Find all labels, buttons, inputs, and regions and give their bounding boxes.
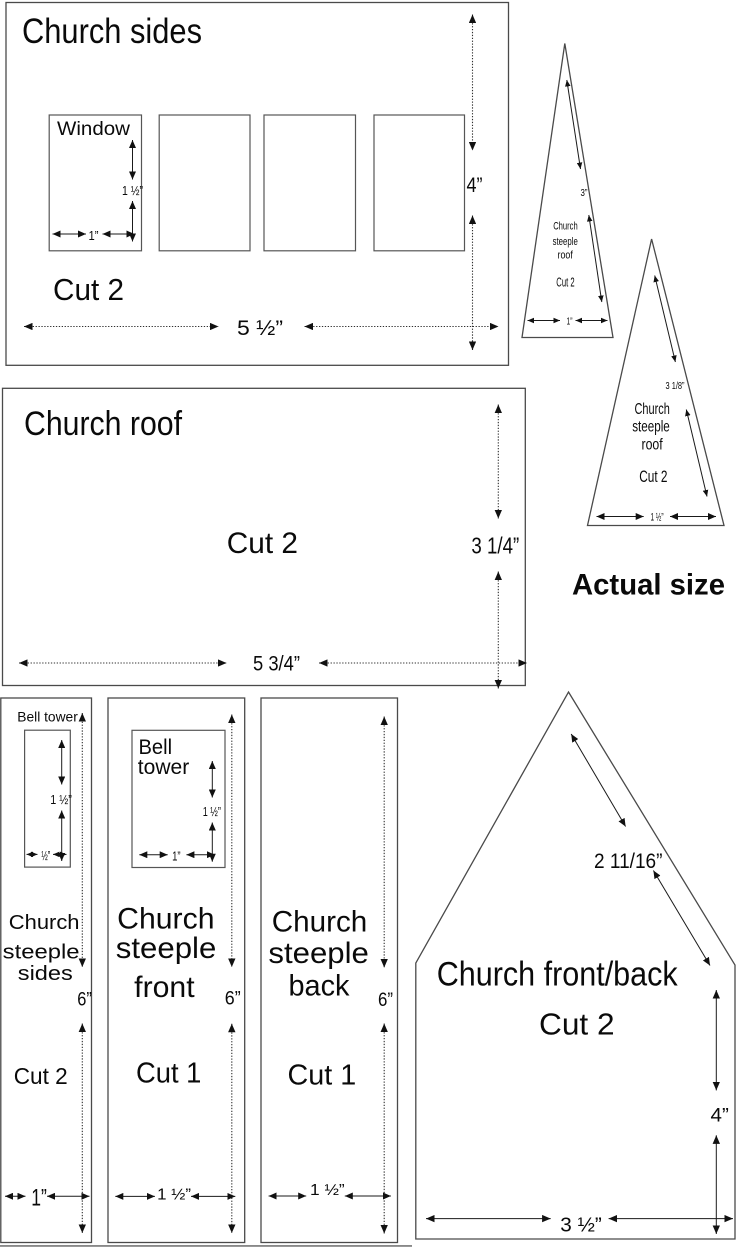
svg-text:steeple: steeple	[3, 940, 80, 963]
svg-text:1 ½”: 1 ½”	[203, 804, 221, 819]
svg-text:1”: 1”	[89, 228, 99, 243]
svg-text:1 ½”: 1 ½”	[50, 793, 72, 807]
svg-text:4”: 4”	[711, 1106, 729, 1127]
svg-text:Church sides: Church sides	[22, 12, 202, 51]
svg-text:Bell tower: Bell tower	[17, 709, 78, 725]
svg-text:steeple: steeple	[553, 236, 578, 248]
svg-text:1 ½”: 1 ½”	[651, 512, 664, 524]
svg-text:Cut 2: Cut 2	[227, 527, 298, 560]
svg-text:3 1/8”: 3 1/8”	[666, 381, 685, 392]
svg-text:6”: 6”	[77, 989, 92, 1011]
svg-text:Cut 2: Cut 2	[53, 272, 124, 307]
svg-text:Cut 2: Cut 2	[556, 275, 574, 289]
svg-text:Actual size: Actual size	[572, 569, 725, 602]
svg-text:Church front/back: Church front/back	[437, 956, 679, 994]
svg-text:3 ½”: 3 ½”	[560, 1215, 602, 1237]
svg-text:roof: roof	[642, 437, 664, 454]
svg-text:5 3/4”: 5 3/4”	[253, 653, 300, 676]
svg-text:Window: Window	[57, 119, 130, 140]
svg-text:1 ½”: 1 ½”	[157, 1187, 191, 1204]
svg-text:1”: 1”	[172, 849, 181, 864]
svg-text:Church roof: Church roof	[24, 405, 182, 443]
svg-text:Church: Church	[553, 221, 578, 233]
svg-text:½”: ½”	[41, 849, 50, 863]
svg-text:Cut 2: Cut 2	[14, 1063, 68, 1089]
svg-text:Cut 2: Cut 2	[639, 467, 667, 486]
svg-text:2 11/16”: 2 11/16”	[594, 850, 663, 873]
svg-text:steeple: steeple	[116, 932, 217, 965]
svg-text:Church: Church	[117, 902, 214, 935]
svg-text:4”: 4”	[467, 174, 483, 197]
svg-text:Cut 1: Cut 1	[136, 1058, 201, 1090]
svg-text:Cut 1: Cut 1	[288, 1060, 357, 1092]
svg-text:1”: 1”	[567, 317, 573, 328]
svg-text:6”: 6”	[225, 988, 241, 1010]
svg-text:3”: 3”	[581, 188, 588, 199]
svg-text:3 1/4”: 3 1/4”	[471, 533, 519, 559]
svg-text:1 ½”: 1 ½”	[122, 183, 143, 198]
svg-text:back: back	[289, 970, 351, 1003]
svg-text:5 ½”: 5 ½”	[237, 317, 283, 340]
svg-text:Cut 2: Cut 2	[539, 1007, 615, 1042]
svg-text:Church: Church	[272, 905, 368, 938]
svg-text:Church: Church	[635, 401, 670, 418]
svg-text:6”: 6”	[378, 989, 393, 1011]
svg-text:sides: sides	[18, 962, 73, 985]
svg-text:roof: roof	[558, 250, 574, 262]
svg-text:Church: Church	[9, 911, 80, 934]
svg-text:1 ½”: 1 ½”	[310, 1182, 345, 1199]
svg-text:steeple: steeple	[268, 937, 369, 970]
svg-text:1”: 1”	[31, 1185, 47, 1212]
svg-text:front: front	[134, 971, 195, 1004]
svg-text:tower: tower	[138, 755, 189, 779]
svg-text:steeple: steeple	[632, 419, 670, 436]
